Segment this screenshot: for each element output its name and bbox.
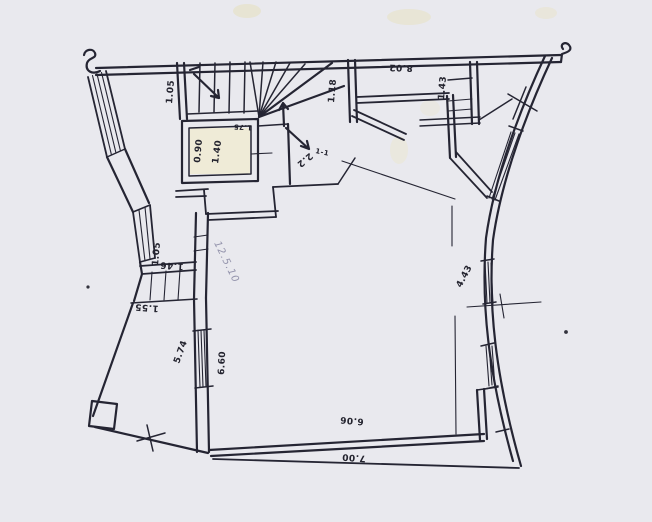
facade-window-hatch-2 xyxy=(481,259,496,304)
ink-speck xyxy=(86,285,89,288)
window-hatch-upper xyxy=(88,71,125,157)
dim-label-shaft: 1.18 xyxy=(327,79,339,104)
annex-bottom-wall xyxy=(95,427,208,453)
dim-label-room-width: 6.06 xyxy=(340,414,365,426)
landing-edge xyxy=(342,161,455,199)
pencil-note: 12.5.10 xyxy=(211,239,241,284)
annex-room xyxy=(89,303,208,453)
survey-tick-mid xyxy=(467,294,541,318)
ink-speck xyxy=(564,330,568,334)
wc-door-tick xyxy=(251,153,272,154)
solid-wall-segment xyxy=(107,149,149,212)
paper-stains xyxy=(86,4,567,334)
step-line xyxy=(150,272,152,300)
right-wall-line xyxy=(455,316,456,434)
dim-label-duct: 1.43 xyxy=(437,76,449,101)
step-line xyxy=(178,270,180,300)
dim-label-left-window: 6.60 xyxy=(217,351,228,375)
facade-window-hatch-1 xyxy=(487,126,523,201)
dim-label-top-corridor: 1.05 xyxy=(165,80,177,105)
dim-label-right-wall: 4.43 xyxy=(455,264,475,290)
dim-label-wc-width: 0.90 xyxy=(193,139,205,164)
top-wall xyxy=(84,43,570,75)
main-room-left-wall xyxy=(193,213,213,452)
step-line xyxy=(164,271,166,300)
dim-label-outer-width: 7.00 xyxy=(342,451,366,463)
floor-plan-canvas: 1.05 8.02 1.18 1.43 0.90 1.40 1.75 2.2 1… xyxy=(0,0,652,522)
facade-connector xyxy=(479,99,512,120)
dim-label-stair-opening: 2.2 xyxy=(295,150,315,169)
dim-label-annex-side: 5.74 xyxy=(172,339,190,365)
left-facade-windows xyxy=(88,71,155,262)
dim-label-porch: 1.55 xyxy=(135,301,159,313)
scanned-floor-plan-sheet: 1.05 8.02 1.18 1.43 0.90 1.40 1.75 2.2 1… xyxy=(0,0,652,522)
dim-label-entry: 1.46 xyxy=(160,259,184,271)
shaft-wall xyxy=(348,60,357,122)
dim-label-niche: 1.75 xyxy=(233,123,252,132)
annex-outer-wall xyxy=(93,303,133,416)
main-room xyxy=(452,206,456,434)
wall-end-hook-right xyxy=(561,43,570,62)
niche xyxy=(258,124,290,184)
dim-label-hall-top: 8.02 xyxy=(389,62,413,73)
section-mark-label: 1-1 xyxy=(315,147,330,158)
wall-end-squiggle-left xyxy=(84,50,100,73)
